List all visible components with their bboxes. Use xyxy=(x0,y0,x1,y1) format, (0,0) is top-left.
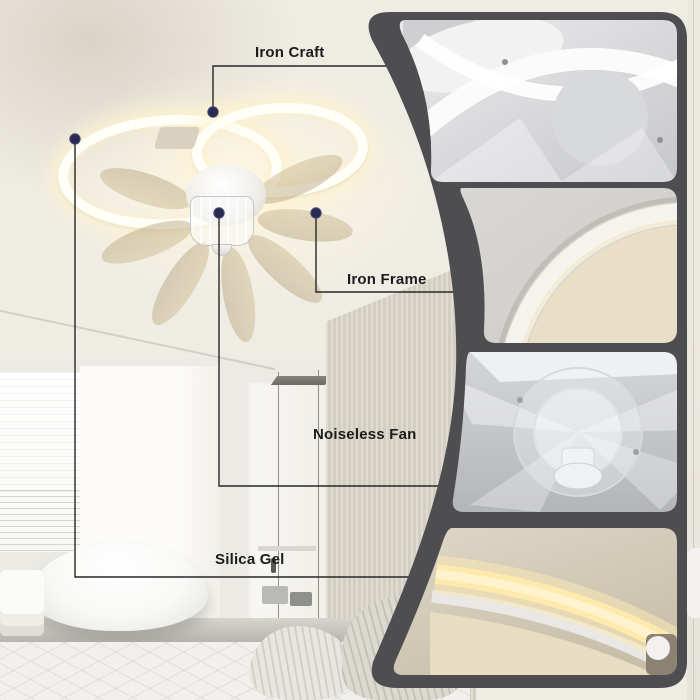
callout-dots xyxy=(70,107,321,218)
callout-label-iron-craft: Iron Craft xyxy=(255,44,325,61)
annotation-overlay xyxy=(0,0,700,700)
callout-dot-iron-frame xyxy=(311,208,321,218)
callout-dot-silica-gel xyxy=(70,134,80,144)
callout-dot-noiseless-fan xyxy=(214,208,224,218)
callout-dot-iron-craft xyxy=(208,107,218,117)
callout-line-iron-craft xyxy=(213,66,400,112)
product-image: Iron Craft Iron Frame Noiseless Fan Sili… xyxy=(0,0,700,700)
callout-label-silica-gel: Silica Gel xyxy=(215,551,285,568)
callout-label-iron-frame: Iron Frame xyxy=(347,271,427,288)
callout-line-silica-gel xyxy=(75,139,424,577)
callout-label-noiseless-fan: Noiseless Fan xyxy=(313,426,416,443)
callout-line-noiseless-fan xyxy=(219,213,449,486)
callout-lines xyxy=(75,66,458,577)
